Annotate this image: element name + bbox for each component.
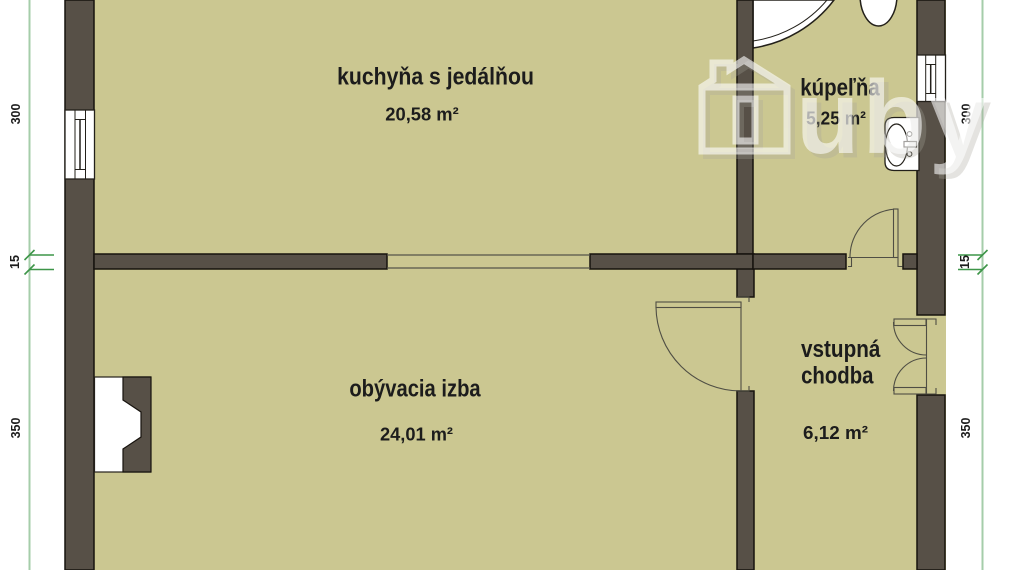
svg-text:15: 15 [8,255,22,269]
svg-text:uby: uby [796,60,990,176]
svg-text:obývacia izba: obývacia izba [349,375,481,402]
svg-text:6,12 m²: 6,12 m² [803,422,868,443]
svg-text:350: 350 [959,418,973,439]
svg-text:20,58 m²: 20,58 m² [385,103,458,124]
svg-text:350: 350 [9,418,23,439]
svg-text:300: 300 [9,104,23,125]
svg-text:24,01 m²: 24,01 m² [380,423,453,444]
svg-text:15: 15 [958,255,972,269]
svg-text:chodba: chodba [801,362,874,389]
svg-text:kuchyňa s jedálňou: kuchyňa s jedálňou [337,62,534,90]
svg-text:vstupná: vstupná [801,336,881,363]
